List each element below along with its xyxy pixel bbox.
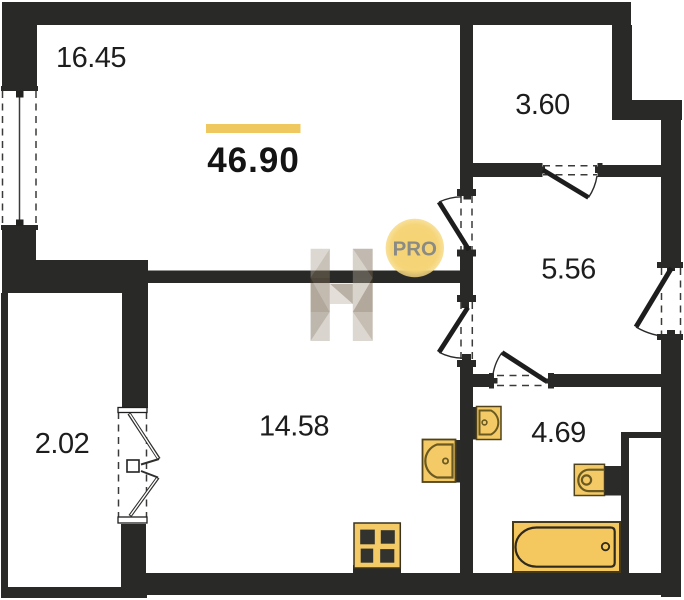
svg-text:46.90: 46.90 xyxy=(207,141,300,180)
svg-text:14.58: 14.58 xyxy=(259,411,329,443)
svg-text:16.45: 16.45 xyxy=(56,42,126,74)
svg-text:2.02: 2.02 xyxy=(35,428,89,460)
svg-text:3.60: 3.60 xyxy=(515,89,569,121)
svg-text:PRO: PRO xyxy=(393,238,437,261)
svg-text:4.69: 4.69 xyxy=(531,417,585,449)
svg-text:5.56: 5.56 xyxy=(541,254,595,286)
